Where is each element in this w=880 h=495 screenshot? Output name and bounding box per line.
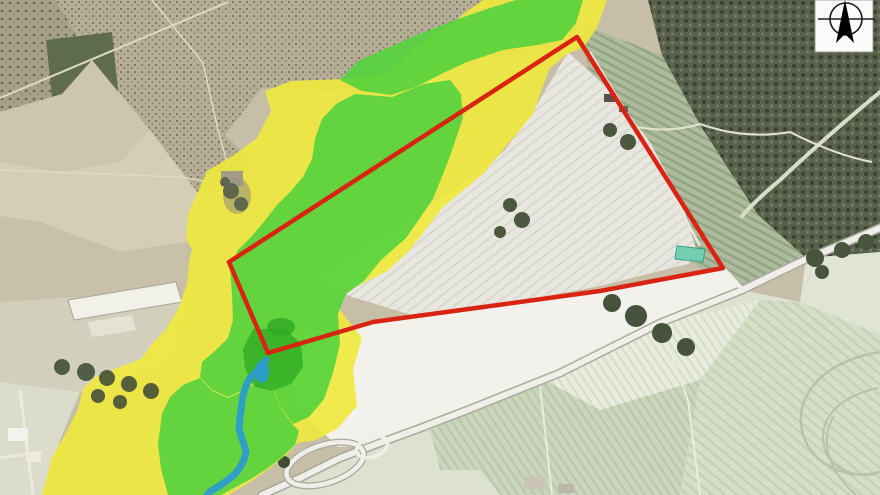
- north-arrow-icon: [815, 0, 875, 52]
- house-bottomleft-1: [8, 428, 28, 441]
- building-bottom-2: [558, 484, 574, 493]
- flood-hazard-map: [0, 0, 880, 495]
- map-shapes-layer: [0, 0, 880, 495]
- flood-zone-green-dark-spot: [267, 318, 295, 336]
- aerial-map-canvas: [0, 0, 880, 495]
- building-bottom-1: [524, 477, 546, 489]
- house-bottomleft-2: [26, 452, 41, 462]
- pond: [675, 246, 705, 262]
